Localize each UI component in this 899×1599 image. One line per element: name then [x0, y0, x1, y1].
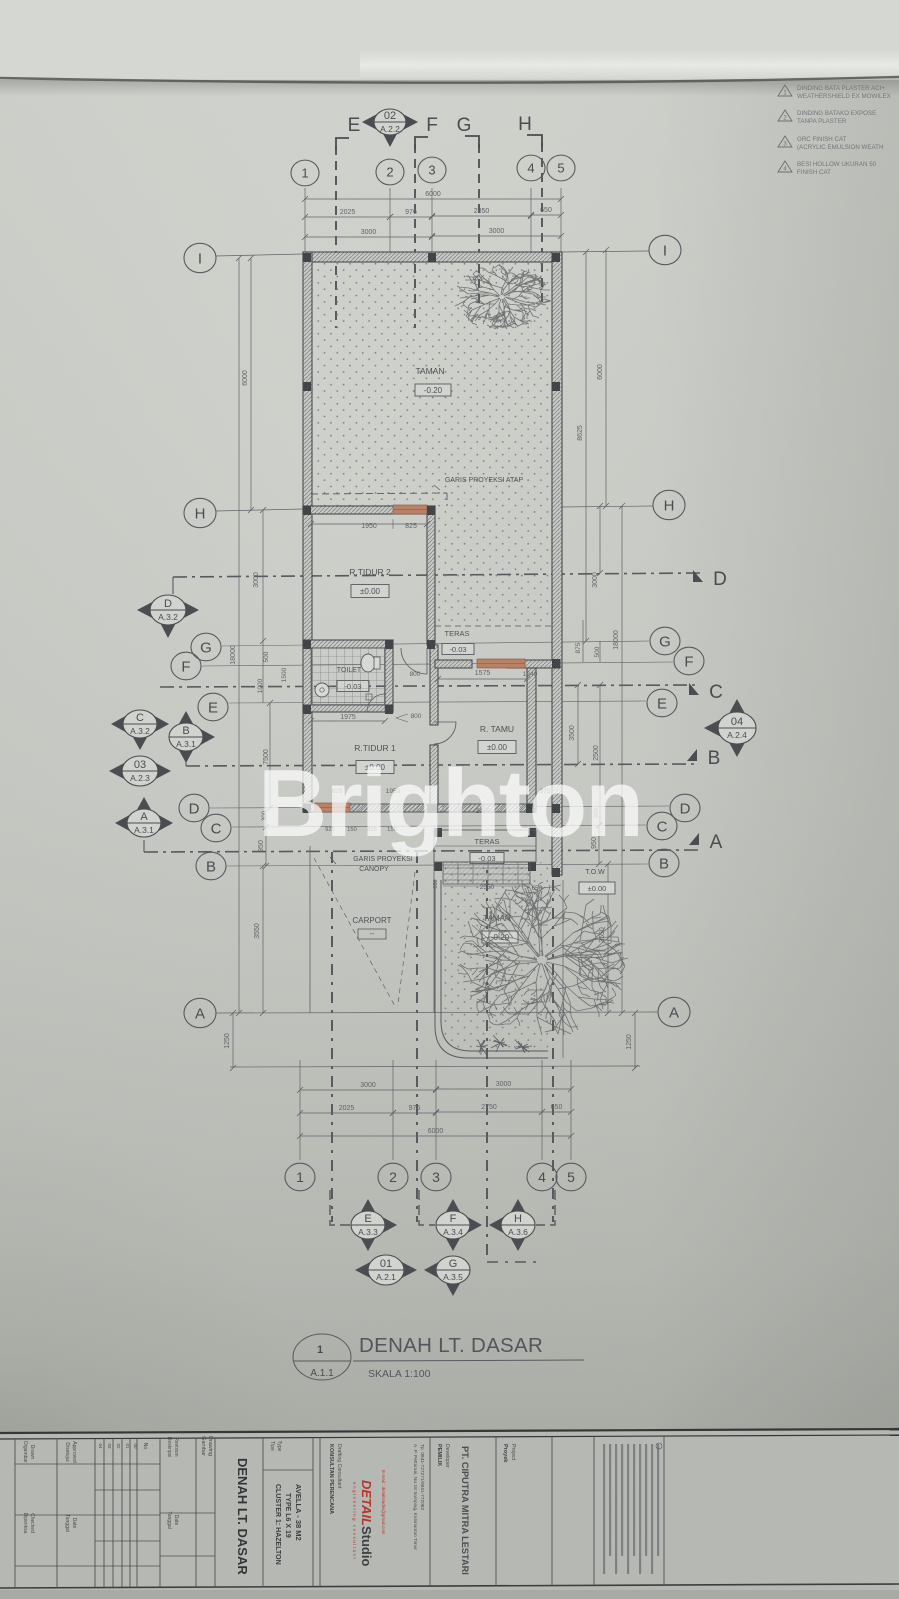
svg-text:B: B — [206, 858, 216, 875]
svg-text:DENAH LT. DASAR: DENAH LT. DASAR — [235, 1458, 250, 1575]
svg-text:1250: 1250 — [224, 1033, 231, 1049]
svg-text:--: -- — [370, 931, 375, 938]
svg-text:3500: 3500 — [569, 725, 576, 741]
svg-text:Approved: Approved — [71, 1441, 77, 1463]
svg-text:800: 800 — [410, 671, 421, 678]
svg-text:A.3.2: A.3.2 — [130, 726, 150, 736]
svg-text:4: 4 — [527, 161, 534, 176]
svg-text:H: H — [518, 114, 532, 135]
svg-text:B: B — [708, 748, 721, 769]
svg-text:03: 03 — [134, 759, 146, 771]
svg-text:I: I — [663, 242, 667, 259]
svg-text:650: 650 — [540, 207, 552, 214]
svg-text:Deskripsi: Deskripsi — [166, 1437, 172, 1458]
svg-text:G: G — [200, 639, 212, 656]
svg-text:2: 2 — [389, 1169, 397, 1185]
svg-text:-0.20: -0.20 — [424, 386, 443, 395]
svg-text:1500: 1500 — [281, 667, 288, 682]
svg-text:WEATHERSHIELD EX MOWILEX: WEATHERSHIELD EX MOWILEX — [797, 93, 891, 100]
svg-text:2025: 2025 — [339, 1105, 355, 1112]
svg-text:Date: Date — [71, 1518, 77, 1529]
svg-text:AVELLA - 38 M2: AVELLA - 38 M2 — [294, 1484, 303, 1541]
svg-text:TERAS: TERAS — [444, 629, 469, 638]
svg-text:Date: Date — [173, 1515, 179, 1526]
svg-text:D: D — [164, 598, 172, 610]
svg-text:E-mail : detailstudio@gmail.co: E-mail : detailstudio@gmail.com — [381, 1470, 386, 1535]
svg-text:A.2.1: A.2.1 — [376, 1272, 396, 1282]
svg-text:Diperiksa: Diperiksa — [22, 1513, 28, 1534]
svg-text:-0.03: -0.03 — [449, 645, 466, 654]
svg-text:T.O.W: T.O.W — [585, 869, 605, 876]
svg-text:PEMILIK: PEMILIK — [436, 1444, 442, 1466]
svg-text:DINDING BATA PLASTER ACI+: DINDING BATA PLASTER ACI+ — [797, 85, 885, 92]
svg-text:4: 4 — [538, 1169, 546, 1185]
svg-text:TYPE L6 X 19: TYPE L6 X 19 — [284, 1493, 291, 1538]
svg-text:Checked: Checked — [29, 1513, 35, 1533]
svg-text:B: B — [659, 855, 669, 872]
svg-text:800: 800 — [411, 713, 422, 720]
svg-text:3000: 3000 — [489, 228, 505, 235]
svg-text:Developer: Developer — [444, 1444, 450, 1468]
svg-text:engineering consultant: engineering consultant — [352, 1482, 357, 1560]
svg-text:3: 3 — [428, 163, 435, 178]
svg-text:976: 976 — [409, 1105, 421, 1112]
svg-text:A.2.4: A.2.4 — [727, 730, 747, 740]
svg-text:A: A — [140, 811, 148, 823]
svg-text:H: H — [514, 1213, 522, 1225]
svg-text:5: 5 — [557, 161, 564, 176]
svg-text:6000: 6000 — [425, 191, 441, 198]
svg-text:Gambar: Gambar — [200, 1436, 206, 1456]
svg-text:2550: 2550 — [480, 884, 495, 891]
svg-text:Tipe: Tipe — [269, 1441, 275, 1451]
svg-text:Brighton: Brighton — [258, 750, 642, 857]
svg-text:1: 1 — [301, 166, 308, 181]
svg-text:No: No — [142, 1443, 148, 1450]
svg-text:1: 1 — [296, 1169, 304, 1185]
svg-text:H: H — [195, 505, 206, 522]
svg-text:GRC FINISH CAT: GRC FINISH CAT — [797, 136, 847, 143]
svg-text:E: E — [208, 699, 218, 716]
svg-text:E: E — [348, 115, 361, 136]
svg-text:KONSULTAN PERENCANA: KONSULTAN PERENCANA — [328, 1444, 334, 1514]
svg-text:6000: 6000 — [242, 370, 249, 386]
svg-text:3000: 3000 — [360, 1082, 376, 1089]
svg-text:04: 04 — [98, 1443, 103, 1449]
svg-text:D: D — [680, 800, 691, 817]
svg-text:CANOPY: CANOPY — [359, 866, 389, 873]
svg-text:D: D — [713, 569, 727, 590]
svg-text:±0.00: ±0.00 — [360, 587, 381, 596]
svg-text:G: G — [457, 115, 472, 136]
svg-text:825: 825 — [405, 523, 417, 530]
svg-text:A.3.1: A.3.1 — [134, 825, 154, 835]
svg-text:3000: 3000 — [496, 1081, 512, 1088]
svg-text:Drawing: Drawing — [207, 1436, 213, 1456]
svg-text:DENAH LT. DASAR: DENAH LT. DASAR — [359, 1334, 543, 1357]
svg-text:3000: 3000 — [592, 572, 599, 588]
svg-text:SKALA 1:100: SKALA 1:100 — [368, 1368, 431, 1380]
svg-text:A.2.3: A.2.3 — [130, 773, 150, 783]
svg-text:976: 976 — [405, 209, 417, 216]
svg-text:A.3.6: A.3.6 — [508, 1227, 528, 1237]
svg-text:FINISH CAT: FINISH CAT — [797, 169, 831, 176]
svg-text:C: C — [709, 682, 723, 703]
svg-text:D: D — [189, 800, 200, 817]
svg-text:04: 04 — [731, 716, 743, 728]
svg-text:A.1.1: A.1.1 — [310, 1368, 334, 1379]
svg-text:A.3.3: A.3.3 — [358, 1227, 378, 1237]
svg-text:1975: 1975 — [340, 714, 356, 721]
svg-text:A: A — [669, 1004, 679, 1021]
svg-text:500: 500 — [594, 646, 601, 657]
svg-text:6000: 6000 — [597, 364, 604, 380]
svg-text:TAMAN: TAMAN — [415, 366, 444, 376]
svg-text:F: F — [426, 115, 438, 136]
svg-text:E: E — [364, 1213, 371, 1225]
svg-text:R.TIDUR 2: R.TIDUR 2 — [349, 567, 391, 577]
svg-text:DETAILStudio: DETAILStudio — [359, 1480, 374, 1566]
svg-text:Drafting Consultant: Drafting Consultant — [336, 1444, 342, 1489]
svg-text:A.2.2: A.2.2 — [380, 124, 400, 134]
svg-text:1575: 1575 — [475, 670, 491, 677]
svg-text:1950: 1950 — [361, 523, 377, 530]
svg-text:3: 3 — [432, 1169, 440, 1185]
svg-text:Type: Type — [276, 1441, 282, 1452]
svg-text:PT. CIPUTRA MITRA LESTARI: PT. CIPUTRA MITRA LESTARI — [460, 1446, 470, 1575]
svg-text:Revision: Revision — [173, 1437, 179, 1456]
svg-text:2: 2 — [386, 165, 393, 180]
svg-text:E: E — [657, 695, 667, 712]
svg-text:C: C — [136, 712, 144, 724]
svg-text:Proyek: Proyek — [502, 1444, 508, 1463]
svg-text:GARIS PROYEKSI: GARIS PROYEKSI — [353, 856, 413, 863]
svg-text:18000: 18000 — [613, 630, 620, 650]
svg-text:3000: 3000 — [361, 229, 377, 236]
svg-text:01: 01 — [380, 1258, 392, 1270]
svg-text:02: 02 — [116, 1443, 121, 1449]
svg-text:B: B — [182, 725, 189, 737]
svg-text:1000: 1000 — [257, 678, 264, 693]
svg-text:I: I — [198, 250, 202, 267]
svg-text:A.3.1: A.3.1 — [176, 739, 196, 749]
svg-text:Disetujui: Disetujui — [64, 1442, 70, 1461]
svg-text:±0.00: ±0.00 — [588, 884, 607, 893]
svg-text:2850: 2850 — [474, 208, 490, 215]
svg-text:1250: 1250 — [626, 1034, 633, 1050]
svg-text:Tanggal: Tanggal — [64, 1514, 70, 1532]
svg-text:A: A — [195, 1005, 205, 1022]
svg-text:BESI HOLLOW UKURAN 50: BESI HOLLOW UKURAN 50 — [797, 161, 877, 168]
svg-text:CARPORT: CARPORT — [353, 916, 392, 925]
svg-text:A. P. Pettarani, No.18 Samping: A. P. Pettarani, No.18 Samping, Kalimant… — [412, 1444, 418, 1550]
svg-text:.: . — [150, 1445, 156, 1446]
svg-text:G: G — [659, 633, 671, 650]
svg-text:Project: Project — [510, 1444, 516, 1461]
svg-text:2025: 2025 — [340, 209, 356, 216]
svg-text:500: 500 — [263, 651, 270, 662]
svg-text:C: C — [657, 818, 668, 835]
svg-text:1240: 1240 — [523, 671, 538, 678]
svg-text:18000: 18000 — [230, 645, 237, 665]
svg-text:CLUSTER 1: HAZELTON: CLUSTER 1: HAZELTON — [274, 1484, 281, 1565]
svg-text:8625: 8625 — [577, 425, 584, 441]
svg-text:01: 01 — [125, 1443, 130, 1449]
svg-text:DINDING BATAKO EXPOSE: DINDING BATAKO EXPOSE — [797, 110, 876, 117]
svg-text:A.3.5: A.3.5 — [443, 1272, 463, 1282]
svg-text:Tp: 0841-727271/0841-772082: Tp: 0841-727271/0841-772082 — [419, 1444, 425, 1510]
svg-text:00: 00 — [133, 1443, 138, 1449]
svg-text:02: 02 — [384, 110, 396, 122]
svg-text:5: 5 — [567, 1169, 575, 1185]
svg-text:F: F — [450, 1213, 457, 1225]
svg-text:6000: 6000 — [428, 1128, 444, 1135]
svg-text:F: F — [181, 658, 190, 675]
svg-text:875: 875 — [575, 642, 582, 653]
svg-text:03: 03 — [107, 1443, 112, 1449]
svg-text:1: 1 — [317, 1344, 323, 1356]
svg-text:TANPA PLASTER: TANPA PLASTER — [797, 118, 847, 125]
svg-text:A: A — [710, 832, 723, 853]
svg-text:G: G — [449, 1258, 458, 1270]
svg-text:650: 650 — [551, 1104, 563, 1111]
svg-text:Tanggal: Tanggal — [166, 1511, 172, 1529]
svg-text:F: F — [684, 653, 693, 670]
svg-text:A.3.4: A.3.4 — [443, 1227, 463, 1237]
svg-text:3550: 3550 — [254, 923, 261, 939]
svg-text:H: H — [664, 497, 675, 514]
svg-text:A.3.2: A.3.2 — [158, 612, 178, 622]
svg-text:GARIS PROYEKSI ATAP: GARIS PROYEKSI ATAP — [445, 477, 524, 484]
svg-text:Drawn: Drawn — [29, 1445, 35, 1460]
svg-text:Digambar: Digambar — [22, 1441, 28, 1463]
svg-text:C: C — [211, 820, 222, 837]
svg-text:2750: 2750 — [481, 1104, 497, 1111]
svg-text:(ACRYLIC EMULSION WEATH: (ACRYLIC EMULSION WEATH — [797, 144, 883, 151]
svg-text:3000: 3000 — [253, 572, 260, 588]
svg-text:R. TAMU: R. TAMU — [480, 724, 514, 734]
